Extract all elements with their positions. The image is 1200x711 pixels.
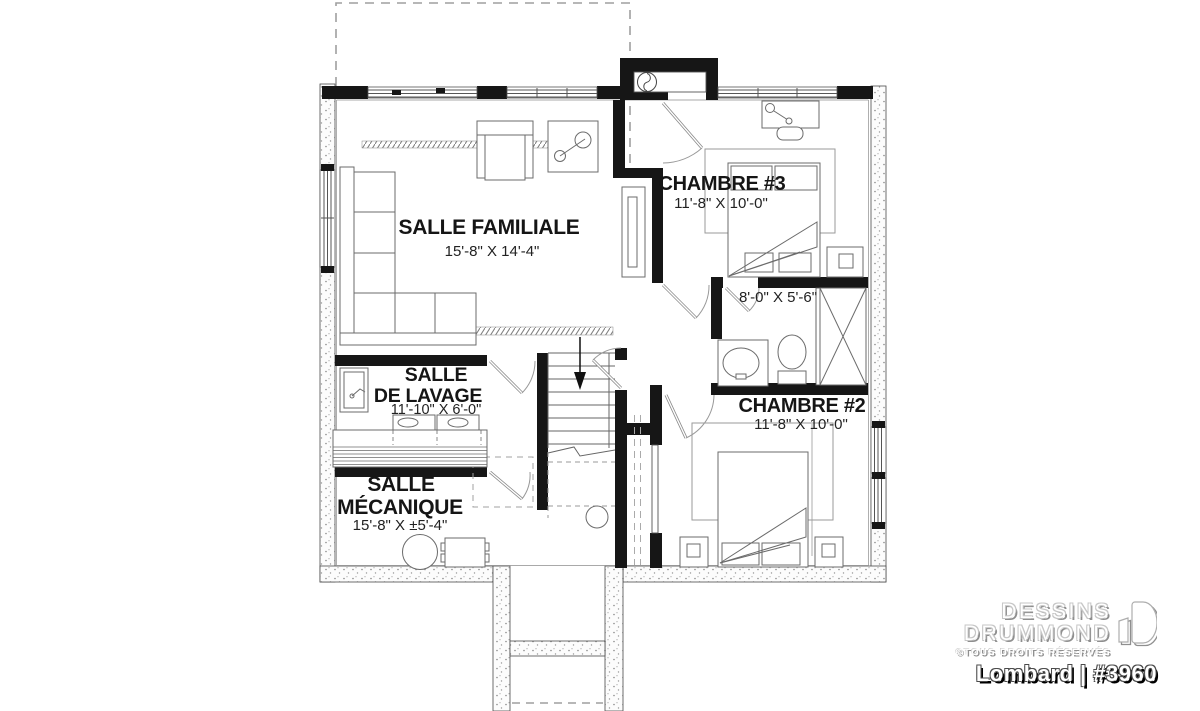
furnace: [445, 538, 485, 567]
sump-pit: [586, 506, 608, 528]
plan-id-label: Lombard | #3960: [956, 661, 1157, 687]
label-mecanique-1: SALLE: [367, 473, 435, 496]
label-mecanique-2: MÉCANIQUE: [337, 496, 463, 519]
dims-salle-familiale: 15'-8" X 14'-4": [445, 243, 540, 260]
lamp-table: [548, 121, 598, 172]
brand-block: DESSINS DRUMMOND ©TOUS DROITS RÉSERVÉS L…: [956, 601, 1157, 687]
thin-partition: [652, 445, 658, 533]
brand-name-line1: DESSINS: [956, 601, 1111, 623]
folding-counter: [333, 430, 487, 467]
brand-name-line2: DRUMMOND: [956, 623, 1111, 645]
label-salle-familiale: SALLE FAMILIALE: [399, 216, 580, 239]
toilet: [778, 335, 806, 369]
label-chambre3: CHAMBRE #3: [658, 173, 785, 195]
bedroom2-furniture: [680, 423, 843, 567]
brand-names: DESSINS DRUMMOND ©TOUS DROITS RÉSERVÉS: [956, 601, 1111, 658]
dims-mecanique: 15'-8" X ±5'-4": [353, 517, 448, 534]
label-lavage-1: SALLE: [405, 364, 468, 386]
copyright-label: ©TOUS DROITS RÉSERVÉS: [956, 647, 1111, 658]
label-chambre2: CHAMBRE #2: [738, 395, 865, 417]
dims-chambre2: 11'-8" X 10'-0": [754, 416, 848, 433]
down-arrow-icon: [574, 372, 586, 390]
desk-chair: [777, 127, 803, 140]
dims-lavage: 11'-10" X 6'-0": [391, 402, 482, 418]
armchair: [477, 121, 533, 135]
water-heater: [403, 535, 438, 570]
chimney-alcove: [634, 72, 706, 92]
drummond-door-icon: [1117, 601, 1157, 647]
dims-bathroom: 8'-0" X 5'-6": [739, 289, 817, 306]
floorplan-page: SALLE FAMILIALE 15'-8" X 14'-4" CHAMBRE …: [0, 0, 1200, 711]
dims-chambre3: 11'-8" X 10'-0": [674, 195, 768, 212]
brand-row: DESSINS DRUMMOND ©TOUS DROITS RÉSERVÉS: [956, 601, 1157, 658]
